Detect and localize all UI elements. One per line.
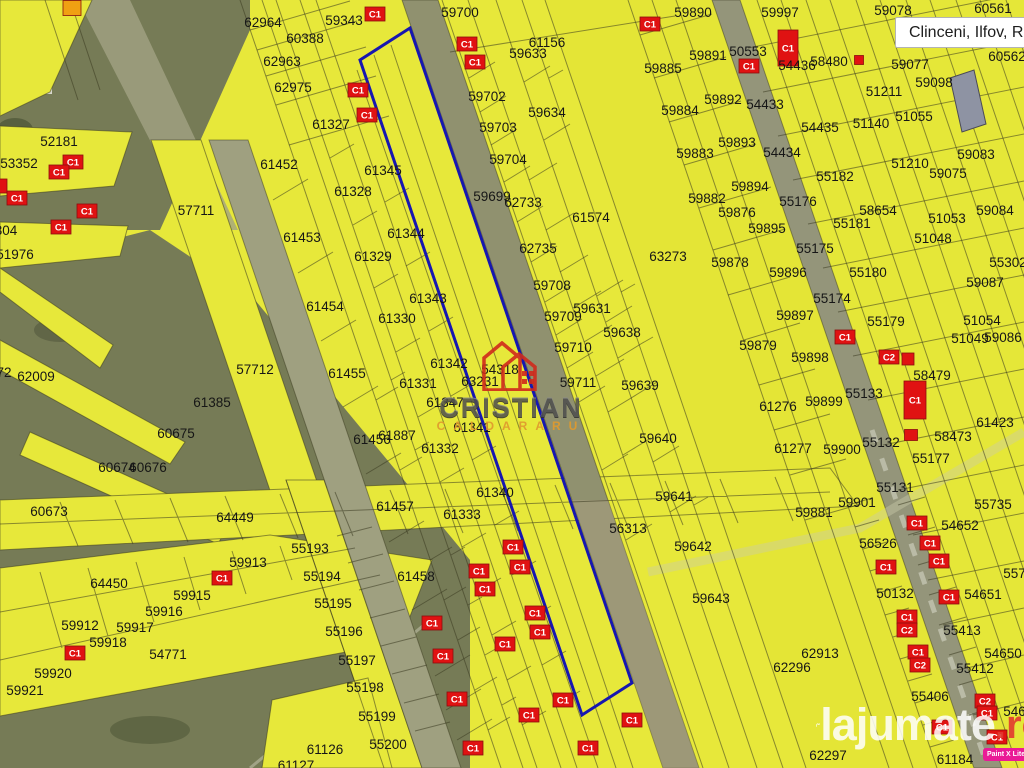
parcel-label: 51049	[951, 331, 989, 346]
building-marker: C1	[495, 637, 515, 651]
parcel-label: 55193	[291, 541, 329, 556]
parcel-label: 59708	[533, 278, 571, 293]
building-marker	[855, 56, 864, 65]
parcel-label: 59912	[61, 618, 99, 633]
building-marker: C1	[907, 516, 927, 530]
parcel-label: 60561	[974, 1, 1012, 16]
svg-text:C1: C1	[469, 58, 482, 69]
parcel-label: 59921	[6, 683, 44, 698]
parcel-label: 59881	[795, 505, 833, 520]
svg-text:C1: C1	[499, 640, 512, 651]
building-marker: C1	[897, 610, 917, 624]
parcel-label: 52181	[40, 134, 78, 149]
building-marker: C1	[503, 540, 523, 554]
parcel-label: 64450	[90, 576, 128, 591]
parcel-label: 58479	[913, 368, 951, 383]
parcel-label: 55302	[989, 255, 1024, 270]
building-marker	[902, 353, 914, 365]
parcel-label: 59892	[704, 92, 742, 107]
parcel-label: 55132	[862, 435, 900, 450]
parcel-label: 61333	[443, 507, 481, 522]
parcel-label: 54433	[746, 97, 784, 112]
parcel-label: 61331	[399, 376, 437, 391]
building-marker: C1	[929, 554, 949, 568]
svg-text:C1: C1	[909, 396, 922, 407]
building-marker: C1	[348, 83, 368, 97]
parcel-label: 59078	[874, 3, 912, 18]
parcel-label: 55133	[845, 386, 883, 401]
svg-text:C1: C1	[514, 563, 527, 574]
svg-text:C1: C1	[626, 716, 639, 727]
svg-text:C1: C1	[467, 744, 480, 755]
svg-text:C1: C1	[523, 711, 536, 722]
svg-text:C1: C1	[451, 695, 464, 706]
building-marker: C1	[365, 7, 385, 21]
parcel-label: 62964	[244, 15, 282, 30]
building-marker: C2	[897, 623, 917, 637]
parcel-label: 55195	[314, 596, 352, 611]
parcel-label: 59917	[116, 620, 154, 635]
parcel-label: 55198	[346, 680, 384, 695]
building-marker: C1	[525, 606, 545, 620]
parcel-label: 59884	[661, 103, 699, 118]
svg-text:C1: C1	[943, 593, 956, 604]
parcel-label: 59639	[621, 378, 659, 393]
svg-text:C1: C1	[924, 539, 937, 550]
svg-text:C1: C1	[743, 62, 756, 73]
parcel-label: 61452	[260, 157, 298, 172]
parcel-label: 61127	[278, 758, 315, 768]
parcel-label: 51054	[963, 313, 1001, 328]
building-marker: C2	[910, 658, 930, 672]
svg-text:C1: C1	[534, 628, 547, 639]
parcel-label: 54318	[481, 362, 519, 377]
parcel-label: 56313	[609, 521, 647, 536]
parcel-label: 59900	[823, 442, 861, 457]
svg-text:C1: C1	[933, 557, 946, 568]
parcel-label: 55177	[912, 451, 950, 466]
parcel-label: 56526	[859, 536, 897, 551]
parcel-label: 59083	[957, 147, 995, 162]
parcel-label: 59915	[173, 588, 211, 603]
parcel-label: 63273	[649, 249, 687, 264]
svg-text:C1: C1	[911, 519, 924, 530]
parcel-label: 61385	[193, 395, 231, 410]
parcel-label: 55180	[849, 265, 887, 280]
parcel-label: 61341	[453, 420, 491, 435]
svg-text:C1: C1	[582, 744, 595, 755]
parcel-label: 62009	[17, 369, 55, 384]
parcel-label: 59343	[325, 13, 363, 28]
parcel-label: 59642	[674, 539, 712, 554]
parcel-label: 59885	[644, 61, 682, 76]
parcel-label: 51210	[891, 156, 929, 171]
building-marker	[905, 430, 918, 441]
parcel-label: 59704	[489, 152, 527, 167]
parcel-label: 58473	[934, 429, 972, 444]
svg-text:C1: C1	[55, 223, 68, 234]
svg-text:C1: C1	[507, 543, 520, 554]
building-marker: C1	[920, 536, 940, 550]
building-marker: C1	[77, 204, 97, 218]
svg-text:C1: C1	[81, 207, 94, 218]
building-marker: C1	[447, 692, 467, 706]
building-marker: C1	[876, 560, 896, 574]
parcel-label: 61457	[376, 499, 414, 514]
parcel-label: 62735	[519, 241, 557, 256]
parcel-label: 55194	[303, 569, 341, 584]
parcel-label: 62296	[773, 660, 811, 675]
building-marker	[0, 179, 7, 193]
parcel-label: 55412	[956, 661, 994, 676]
svg-text:C1: C1	[216, 574, 229, 585]
svg-text:C1: C1	[461, 40, 474, 51]
svg-text:C1: C1	[352, 86, 365, 97]
svg-text:C1: C1	[991, 733, 1004, 744]
svg-text:C1: C1	[437, 652, 450, 663]
parcel-label: 54652	[941, 518, 979, 533]
parcel-label: 61184	[937, 752, 974, 767]
parcel-label: 55199	[358, 709, 396, 724]
building-marker: C1	[622, 713, 642, 727]
parcel-label: 61344	[387, 226, 425, 241]
parcel-label: 55174	[813, 291, 851, 306]
parcel-label: 59643	[692, 591, 730, 606]
parcel-label: 61342	[430, 356, 468, 371]
parcel-label: 62913	[801, 646, 839, 661]
parcel-label: 55735	[974, 497, 1012, 512]
parcel-label: 59710	[554, 340, 592, 355]
parcel-label: 55181	[833, 216, 871, 231]
svg-text:C1: C1	[529, 609, 542, 620]
parcel-label: 61327	[312, 117, 350, 132]
svg-text:C1: C1	[880, 563, 893, 574]
svg-text:C1: C1	[936, 723, 949, 734]
building-marker: C1	[987, 730, 1007, 744]
parcel-label: 55413	[943, 623, 981, 638]
parcel-label: 61330	[378, 311, 416, 326]
parcel-label: 60388	[286, 31, 324, 46]
svg-text:C1: C1	[11, 194, 24, 205]
building-marker: C1	[932, 720, 952, 734]
parcel-label: 59641	[655, 489, 693, 504]
building-marker: C1	[7, 191, 27, 205]
parcel-label: 59882	[688, 191, 726, 206]
parcel-label: 59897	[776, 308, 814, 323]
svg-text:C1: C1	[53, 168, 66, 179]
parcel-label: 55175	[796, 241, 834, 256]
parcel-label: 61126	[307, 742, 344, 757]
parcel-label: 55131	[876, 480, 914, 495]
building-marker: C1	[908, 645, 928, 659]
parcel-label: 54435	[801, 120, 839, 135]
parcel-label: 59898	[791, 350, 829, 365]
svg-text:C1: C1	[369, 10, 382, 21]
parcel-label: 59883	[676, 146, 714, 161]
parcel-label: 59899	[805, 394, 843, 409]
building-marker: C1	[977, 706, 997, 720]
parcel-label: 61453	[283, 230, 321, 245]
parcel-label: 58480	[810, 54, 848, 69]
svg-text:C1: C1	[782, 44, 795, 55]
map-screenshot: C1C1C1C1C1C1C1C1C1C1C1C1C1C1C2C1C1C1C1C1…	[0, 0, 1024, 768]
building-marker: C1	[457, 37, 477, 51]
building-marker: C1	[433, 649, 453, 663]
svg-text:C1: C1	[901, 613, 914, 624]
parcel-label: 59997	[761, 5, 799, 20]
building-marker: C1	[904, 381, 926, 419]
parcel-label: 60562	[988, 49, 1024, 64]
parcel-label: 61276	[759, 399, 797, 414]
svg-text:C1: C1	[912, 648, 925, 659]
building-marker: C1	[578, 741, 598, 755]
svg-text:C2: C2	[901, 626, 913, 637]
building-marker: C1	[463, 741, 483, 755]
parcel-label: 55197	[338, 653, 376, 668]
parcel-label: 55176	[779, 194, 817, 209]
parcel-label: 54650	[984, 646, 1022, 661]
svg-text:C1: C1	[557, 696, 570, 707]
building-marker: C1	[835, 330, 855, 344]
parcel-label: 60675	[157, 426, 195, 441]
parcel-label: 61340	[476, 485, 514, 500]
parcel-label: 57712	[236, 362, 274, 377]
building-marker: C1	[469, 564, 489, 578]
parcel-label: 55179	[867, 314, 905, 329]
parcel-label: 54651	[964, 587, 1002, 602]
parcel-label: 64449	[216, 510, 254, 525]
building-marker: C1	[640, 17, 660, 31]
building-marker: C1	[475, 582, 495, 596]
parcel-label: 59876	[718, 205, 756, 220]
svg-text:C2: C2	[883, 353, 895, 364]
building-marker: C1	[65, 646, 85, 660]
parcel-label: 59084	[976, 203, 1014, 218]
parcel-label: 51211	[866, 84, 903, 99]
parcel-label: 72	[0, 365, 12, 380]
building-marker: C1	[212, 571, 232, 585]
parcel-label: 51976	[0, 247, 34, 262]
parcel-label: 62963	[263, 54, 301, 69]
parcel-label: 61454	[306, 299, 344, 314]
parcel-label: 60676	[129, 460, 167, 475]
building-marker	[63, 1, 81, 16]
parcel-label: 59703	[479, 120, 517, 135]
parcel-label: 59702	[468, 89, 506, 104]
parcel-label: 59086	[984, 330, 1022, 345]
building-marker: C1	[530, 625, 550, 639]
parcel-label: 59098	[915, 75, 953, 90]
parcel-label: 51053	[928, 211, 966, 226]
parcel-label: 59631	[573, 301, 611, 316]
parcel-label: 54434	[763, 145, 801, 160]
parcel-label: 59894	[731, 179, 769, 194]
parcel-label: 59640	[639, 431, 677, 446]
svg-text:C1: C1	[479, 585, 492, 596]
parcel-label: 59077	[891, 57, 929, 72]
parcel-label: 304	[0, 223, 18, 238]
parcel-label: 54649	[1003, 704, 1024, 719]
parcel-label: 59879	[739, 338, 777, 353]
parcel-label: 55406	[911, 689, 949, 704]
building-marker: C1	[739, 59, 759, 73]
parcel-label: 61277	[774, 441, 812, 456]
svg-text:C1: C1	[839, 333, 852, 344]
parcel-label: 59920	[34, 666, 72, 681]
svg-text:C1: C1	[644, 20, 657, 31]
parcel-label: 62297	[809, 748, 847, 763]
parcel-label: 61887	[378, 428, 416, 443]
parcel-label: 59711	[560, 375, 597, 390]
parcel-label: 61458	[397, 569, 435, 584]
parcel-label: 59913	[229, 555, 267, 570]
building-marker: C1	[49, 165, 69, 179]
parcel-label: 59633	[509, 46, 547, 61]
parcel-label: 50132	[876, 586, 914, 601]
svg-text:C1: C1	[473, 567, 486, 578]
building-marker: C2	[879, 350, 899, 364]
parcel-label: 61329	[354, 249, 392, 264]
parcel-label: 54771	[149, 647, 187, 662]
parcel-label: 55200	[369, 737, 407, 752]
parcel-label: 51140	[853, 116, 890, 131]
parcel-label: 59916	[145, 604, 183, 619]
svg-text:C1: C1	[361, 111, 374, 122]
building-marker: C1	[465, 55, 485, 69]
building-marker: C1	[553, 693, 573, 707]
svg-text:C1: C1	[981, 709, 994, 720]
parcel-label: 50553	[729, 44, 767, 59]
parcel-label: 59638	[603, 325, 641, 340]
building-marker: C1	[519, 708, 539, 722]
parcel-label: 59087	[966, 275, 1004, 290]
parcel-label: 59634	[528, 105, 566, 120]
parcel-label: 55734	[1003, 566, 1024, 581]
parcel-label: 55196	[325, 624, 363, 639]
parcel-label: 59700	[441, 5, 479, 20]
parcel-label: 61343	[409, 291, 447, 306]
svg-text:C1: C1	[69, 649, 82, 660]
parcel-label: 59075	[929, 166, 967, 181]
parcel-label: 60673	[30, 504, 68, 519]
building-marker: C1	[510, 560, 530, 574]
parcel-label: 51048	[914, 231, 952, 246]
parcel-label: 51055	[895, 109, 933, 124]
building-marker: C1	[422, 616, 442, 630]
parcel-label: 62975	[274, 80, 312, 95]
parcel-label: 61345	[364, 163, 402, 178]
parcel-label: 59896	[769, 265, 807, 280]
building-marker: C1	[939, 590, 959, 604]
parcel-label: 61347	[426, 395, 464, 410]
svg-text:C1: C1	[426, 619, 439, 630]
parcel-label: 59893	[718, 135, 756, 150]
parcel-label: 55182	[816, 169, 854, 184]
parcel-label: 61328	[334, 184, 372, 199]
building-marker: C1	[357, 108, 377, 122]
parcel-label: 59918	[89, 635, 127, 650]
map-canvas[interactable]: C1C1C1C1C1C1C1C1C1C1C1C1C1C1C2C1C1C1C1C1…	[0, 0, 1024, 768]
parcel-label: 61574	[572, 210, 610, 225]
location-label[interactable]: Clinceni, Ilfov, ROU	[895, 17, 1024, 48]
parcel-label: 61455	[328, 366, 366, 381]
parcel-label: 53352	[0, 156, 38, 171]
parcel-label: 59890	[674, 5, 712, 20]
parcel-label: 61332	[421, 441, 459, 456]
svg-text:C2: C2	[914, 661, 926, 672]
parcel-label: 59901	[838, 495, 876, 510]
parcel-label: 61423	[976, 415, 1014, 430]
app-badge: Paint X Lite	[983, 748, 1024, 761]
building-marker: C1	[51, 220, 71, 234]
parcel-label: 59878	[711, 255, 749, 270]
parcel-label: 57711	[178, 203, 215, 218]
parcel-label: 62733	[504, 195, 542, 210]
parcel-label: 59895	[748, 221, 786, 236]
parcel-label: 59891	[689, 48, 727, 63]
